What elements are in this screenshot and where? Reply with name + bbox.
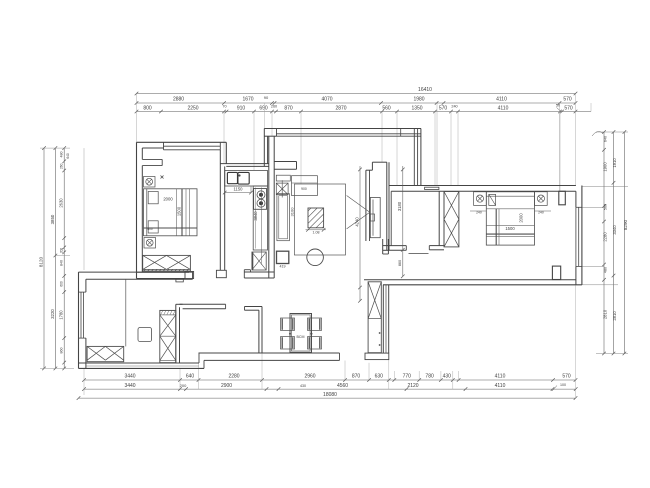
svg-text:910: 910 bbox=[237, 105, 246, 111]
svg-text:16410: 16410 bbox=[418, 87, 432, 93]
svg-text:430: 430 bbox=[300, 384, 306, 388]
svg-text:1910: 1910 bbox=[612, 158, 617, 168]
svg-text:100: 100 bbox=[560, 383, 566, 387]
svg-text:630: 630 bbox=[375, 374, 384, 380]
svg-text:1.08: 1.08 bbox=[313, 231, 320, 235]
svg-text:3220: 3220 bbox=[50, 309, 55, 319]
svg-text:260: 260 bbox=[60, 163, 64, 169]
svg-text:4240: 4240 bbox=[354, 217, 359, 227]
svg-text:1150: 1150 bbox=[233, 187, 243, 192]
svg-text:4560: 4560 bbox=[337, 383, 348, 389]
svg-text:3850: 3850 bbox=[50, 214, 55, 224]
svg-text:8290: 8290 bbox=[623, 219, 628, 230]
svg-text:3440: 3440 bbox=[124, 374, 135, 380]
svg-text:4110: 4110 bbox=[495, 383, 506, 389]
svg-text:3840: 3840 bbox=[253, 211, 258, 221]
svg-text:2250: 2250 bbox=[187, 105, 198, 111]
svg-text:860: 860 bbox=[60, 348, 64, 354]
svg-text:200: 200 bbox=[180, 383, 187, 388]
svg-text:3180: 3180 bbox=[397, 201, 402, 211]
svg-text:18080: 18080 bbox=[323, 392, 337, 398]
svg-text:8120: 8120 bbox=[39, 256, 44, 267]
svg-text:2880: 2880 bbox=[173, 97, 184, 103]
svg-text:2280: 2280 bbox=[228, 374, 239, 380]
svg-text:860: 860 bbox=[398, 260, 402, 266]
svg-text:260: 260 bbox=[271, 105, 277, 109]
svg-text:2870: 2870 bbox=[335, 105, 346, 111]
svg-text:1500: 1500 bbox=[505, 226, 515, 231]
svg-text:2280: 2280 bbox=[603, 232, 608, 242]
svg-text:840: 840 bbox=[60, 260, 64, 266]
svg-text:870: 870 bbox=[352, 374, 361, 380]
svg-text:600: 600 bbox=[60, 281, 64, 287]
svg-text:640: 640 bbox=[604, 136, 608, 142]
svg-text:1350: 1350 bbox=[411, 105, 422, 111]
svg-text:1900: 1900 bbox=[603, 162, 608, 172]
svg-text:560: 560 bbox=[382, 105, 391, 111]
svg-text:570: 570 bbox=[563, 97, 572, 103]
svg-text:570: 570 bbox=[439, 105, 448, 111]
svg-text:560: 560 bbox=[604, 204, 608, 210]
svg-text:2960: 2960 bbox=[304, 374, 315, 380]
svg-text:770: 770 bbox=[403, 374, 412, 380]
svg-text:480: 480 bbox=[604, 267, 608, 273]
svg-text:3100: 3100 bbox=[290, 207, 295, 217]
svg-text:70: 70 bbox=[222, 105, 226, 109]
svg-text:1500: 1500 bbox=[177, 206, 182, 216]
svg-text:2900: 2900 bbox=[221, 383, 232, 389]
svg-text:419: 419 bbox=[280, 264, 286, 268]
svg-text:4110: 4110 bbox=[495, 374, 506, 380]
svg-text:430: 430 bbox=[443, 374, 452, 380]
svg-text:2120: 2120 bbox=[407, 383, 418, 389]
svg-text:800: 800 bbox=[143, 105, 152, 111]
svg-text:600: 600 bbox=[147, 227, 153, 231]
svg-text:870: 870 bbox=[284, 105, 293, 111]
svg-text:2000: 2000 bbox=[519, 213, 524, 223]
svg-text:4110: 4110 bbox=[496, 97, 507, 103]
svg-text:2810: 2810 bbox=[603, 309, 608, 319]
svg-text:1670: 1670 bbox=[242, 97, 253, 103]
svg-text:BCM: BCM bbox=[297, 335, 305, 339]
svg-text:2630: 2630 bbox=[59, 198, 64, 208]
svg-text:3340: 3340 bbox=[612, 225, 617, 235]
svg-text:640: 640 bbox=[66, 153, 70, 159]
svg-text:4110: 4110 bbox=[498, 105, 509, 111]
svg-text:1780: 1780 bbox=[59, 310, 64, 320]
svg-text:780: 780 bbox=[425, 374, 434, 380]
svg-text:200: 200 bbox=[60, 248, 64, 254]
svg-text:690: 690 bbox=[259, 105, 268, 111]
svg-text:570: 570 bbox=[562, 374, 571, 380]
svg-text:240: 240 bbox=[451, 105, 457, 109]
svg-text:900: 900 bbox=[301, 187, 307, 191]
svg-text:90: 90 bbox=[264, 95, 269, 100]
svg-text:4070: 4070 bbox=[321, 97, 332, 103]
svg-text:3440: 3440 bbox=[124, 383, 135, 389]
svg-text:570: 570 bbox=[564, 105, 573, 111]
svg-text:640: 640 bbox=[186, 374, 195, 380]
svg-text:2810: 2810 bbox=[612, 311, 617, 321]
svg-text:480: 480 bbox=[60, 152, 64, 158]
svg-text:2000: 2000 bbox=[163, 197, 173, 202]
svg-text:1980: 1980 bbox=[413, 97, 424, 103]
